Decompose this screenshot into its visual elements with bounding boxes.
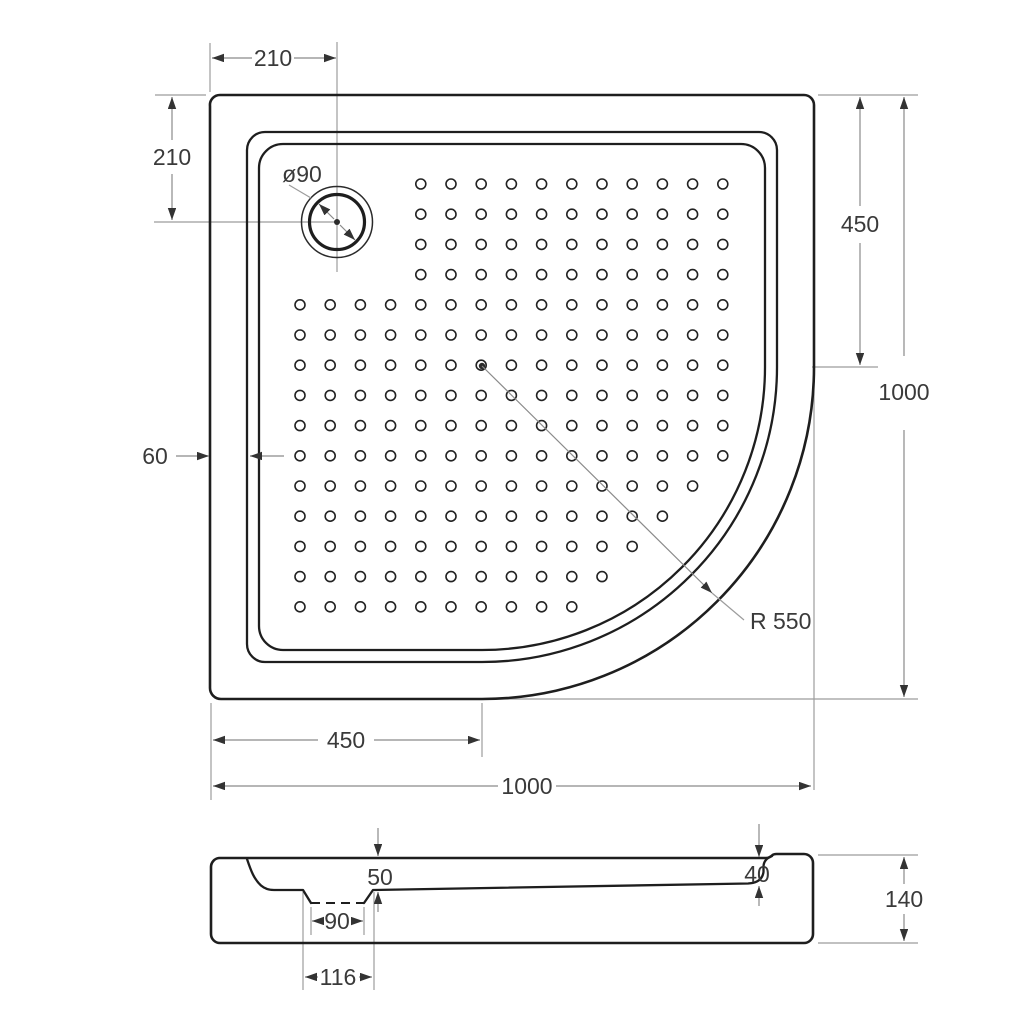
anti-slip-dot: [355, 541, 365, 551]
anti-slip-dot: [506, 421, 516, 431]
anti-slip-dot: [597, 511, 607, 521]
anti-slip-dot: [325, 421, 335, 431]
anti-slip-dot: [476, 390, 486, 400]
anti-slip-dot: [597, 209, 607, 219]
anti-slip-dot: [446, 360, 456, 370]
anti-slip-dot: [386, 330, 396, 340]
anti-slip-dot: [537, 451, 547, 461]
anti-slip-dot: [597, 270, 607, 280]
anti-slip-dot: [597, 360, 607, 370]
anti-slip-dot: [597, 572, 607, 582]
anti-slip-dot: [325, 541, 335, 551]
anti-slip-dot: [627, 239, 637, 249]
section-basin-floor: [364, 856, 772, 903]
technical-drawing-canvas: ø90 R 550 210 210 450: [0, 0, 1024, 1024]
anti-slip-dot: [597, 330, 607, 340]
dimension-section-height: 140: [885, 857, 923, 941]
anti-slip-dot: [537, 511, 547, 521]
anti-slip-dot: [386, 602, 396, 612]
anti-slip-dot: [688, 270, 698, 280]
anti-slip-dot: [537, 270, 547, 280]
drain: ø90: [282, 161, 372, 258]
anti-slip-dot: [657, 209, 667, 219]
anti-slip-dot: [537, 239, 547, 249]
anti-slip-dot: [537, 330, 547, 340]
anti-slip-dot: [657, 179, 667, 189]
anti-slip-dot: [567, 541, 577, 551]
anti-slip-dot: [506, 330, 516, 340]
anti-slip-dot: [537, 541, 547, 551]
anti-slip-dot: [688, 451, 698, 461]
anti-slip-dot: [567, 209, 577, 219]
anti-slip-dot: [537, 179, 547, 189]
anti-slip-dot: [567, 390, 577, 400]
anti-slip-dot: [688, 360, 698, 370]
top-view: ø90 R 550 210 210 450: [142, 42, 929, 800]
anti-slip-dot: [295, 572, 305, 582]
section-view: 50 90 116 40 140: [211, 824, 923, 990]
anti-slip-dot: [386, 572, 396, 582]
anti-slip-dot: [718, 390, 728, 400]
anti-slip-dot: [506, 572, 516, 582]
dim-label-bottom-straight: 450: [327, 727, 365, 753]
drain-diameter-arrow-lower: [340, 225, 355, 240]
anti-slip-dot: [567, 270, 577, 280]
dimension-rim-width: 60: [142, 443, 284, 469]
anti-slip-dot: [537, 572, 547, 582]
anti-slip-dot: [386, 390, 396, 400]
corner-radius-annotation: R 550: [479, 363, 812, 634]
anti-slip-dot: [537, 360, 547, 370]
anti-slip-dot: [657, 451, 667, 461]
section-outer-profile: [211, 854, 813, 943]
anti-slip-dot: [476, 481, 486, 491]
dimension-overall-width: 1000: [213, 773, 811, 799]
anti-slip-dot: [295, 481, 305, 491]
anti-slip-dot: [446, 572, 456, 582]
anti-slip-dot: [657, 270, 667, 280]
anti-slip-dot: [386, 451, 396, 461]
anti-slip-dot: [446, 481, 456, 491]
dim-label-side-straight: 450: [841, 211, 879, 237]
anti-slip-dot: [597, 179, 607, 189]
anti-slip-dot: [688, 481, 698, 491]
anti-slip-dot: [627, 541, 637, 551]
anti-slip-dot: [627, 360, 637, 370]
extension-lines: [154, 42, 918, 800]
anti-slip-dot: [627, 390, 637, 400]
anti-slip-dot: [718, 360, 728, 370]
anti-slip-dot: [718, 330, 728, 340]
anti-slip-dot: [295, 360, 305, 370]
anti-slip-dot: [627, 209, 637, 219]
anti-slip-dot: [657, 421, 667, 431]
anti-slip-dot: [688, 390, 698, 400]
drawing-page: ø90 R 550 210 210 450: [0, 0, 1024, 1024]
anti-slip-dot: [386, 360, 396, 370]
anti-slip-dot: [688, 421, 698, 431]
anti-slip-dot: [416, 300, 426, 310]
anti-slip-dot: [627, 421, 637, 431]
anti-slip-dot: [537, 481, 547, 491]
anti-slip-dot: [446, 541, 456, 551]
anti-slip-dot: [416, 179, 426, 189]
dim-label-front-rim: 40: [744, 861, 770, 887]
dimension-drain-offset-y: 210: [153, 97, 191, 220]
anti-slip-dot: [627, 270, 637, 280]
anti-slip-dot: [597, 451, 607, 461]
anti-slip-dot: [657, 360, 667, 370]
anti-slip-dot: [295, 541, 305, 551]
anti-slip-dot: [597, 541, 607, 551]
anti-slip-dot: [718, 421, 728, 431]
anti-slip-dot: [446, 511, 456, 521]
dim-label-overall-width: 1000: [501, 773, 552, 799]
anti-slip-dot: [355, 451, 365, 461]
dimension-side-straight: 450: [841, 97, 879, 365]
anti-slip-dot: [476, 179, 486, 189]
anti-slip-dot: [506, 481, 516, 491]
anti-slip-dot: [325, 451, 335, 461]
anti-slip-dot: [506, 451, 516, 461]
anti-slip-dot: [567, 511, 577, 521]
anti-slip-dot: [386, 511, 396, 521]
anti-slip-dot: [446, 300, 456, 310]
anti-slip-dot: [657, 481, 667, 491]
anti-slip-dot: [295, 451, 305, 461]
section-extension-lines: [303, 855, 918, 990]
anti-slip-dot: [416, 481, 426, 491]
dim-label-section-height: 140: [885, 886, 923, 912]
anti-slip-dot: [355, 511, 365, 521]
anti-slip-dot: [416, 572, 426, 582]
anti-slip-dot: [325, 300, 335, 310]
anti-slip-dot: [537, 300, 547, 310]
anti-slip-dot: [718, 209, 728, 219]
anti-slip-dot: [718, 239, 728, 249]
anti-slip-dot: [355, 390, 365, 400]
anti-slip-dot: [657, 390, 667, 400]
dimension-drain-hole: 90: [312, 908, 363, 934]
anti-slip-dot: [506, 179, 516, 189]
anti-slip-dot: [506, 209, 516, 219]
anti-slip-dot: [537, 390, 547, 400]
anti-slip-dot: [537, 602, 547, 612]
anti-slip-dot: [567, 300, 577, 310]
anti-slip-dot: [627, 330, 637, 340]
anti-slip-dot: [355, 421, 365, 431]
anti-slip-dot: [386, 421, 396, 431]
anti-slip-dot: [627, 481, 637, 491]
anti-slip-dot: [355, 330, 365, 340]
dim-label-drain-recess: 116: [320, 964, 357, 990]
anti-slip-dot: [476, 451, 486, 461]
anti-slip-dot: [627, 179, 637, 189]
anti-slip-dot: [597, 239, 607, 249]
anti-slip-dot: [295, 602, 305, 612]
dimension-drain-recess: 116: [305, 964, 372, 990]
anti-slip-dot: [688, 239, 698, 249]
anti-slip-dot: [567, 330, 577, 340]
dim-label-drain-hole: 90: [324, 908, 350, 934]
anti-slip-dot: [446, 602, 456, 612]
anti-slip-dot: [325, 330, 335, 340]
anti-slip-dot: [476, 541, 486, 551]
dimension-drain-offset-x: 210: [212, 45, 336, 71]
anti-slip-dot: [506, 602, 516, 612]
anti-slip-dot: [597, 390, 607, 400]
anti-slip-dot: [295, 421, 305, 431]
anti-slip-dot: [506, 511, 516, 521]
anti-slip-dot: [718, 270, 728, 280]
anti-slip-dot: [476, 511, 486, 521]
corner-radius-label: R 550: [750, 608, 811, 634]
anti-slip-dot: [506, 541, 516, 551]
radius-leader-elbow: [712, 593, 744, 620]
anti-slip-dot: [416, 270, 426, 280]
drain-diameter-label: ø90: [282, 161, 322, 187]
anti-slip-dot: [416, 360, 426, 370]
dimension-bottom-straight: 450: [213, 727, 480, 753]
anti-slip-dot: [355, 360, 365, 370]
anti-slip-dot: [325, 481, 335, 491]
dim-label-overall-height: 1000: [878, 379, 929, 405]
anti-slip-dot: [446, 270, 456, 280]
anti-slip-dot: [446, 421, 456, 431]
anti-slip-dot: [446, 179, 456, 189]
anti-slip-dot: [476, 572, 486, 582]
anti-slip-dot: [416, 541, 426, 551]
anti-slip-dot: [567, 239, 577, 249]
anti-slip-dot: [476, 421, 486, 431]
anti-slip-dot: [295, 511, 305, 521]
anti-slip-dot: [416, 511, 426, 521]
anti-slip-dot: [627, 511, 637, 521]
anti-slip-dot: [446, 330, 456, 340]
anti-slip-dot: [416, 602, 426, 612]
dim-label-drain-offset-x: 210: [254, 45, 292, 71]
anti-slip-dot: [688, 300, 698, 310]
anti-slip-dot: [446, 209, 456, 219]
anti-slip-dot: [476, 239, 486, 249]
anti-slip-dot: [386, 541, 396, 551]
anti-slip-dot: [386, 481, 396, 491]
anti-slip-dot: [567, 421, 577, 431]
anti-slip-dot: [688, 179, 698, 189]
anti-slip-dot: [416, 239, 426, 249]
anti-slip-dot: [567, 602, 577, 612]
radius-arrow: [482, 366, 712, 593]
anti-slip-dot: [416, 451, 426, 461]
anti-slip-dot: [446, 239, 456, 249]
anti-slip-dot: [506, 239, 516, 249]
anti-slip-dot: [325, 360, 335, 370]
drain-diameter-arrow-upper: [319, 204, 334, 219]
anti-slip-dot: [657, 239, 667, 249]
anti-slip-dot: [446, 390, 456, 400]
dim-label-rim-width: 60: [142, 443, 168, 469]
anti-slip-dot: [506, 270, 516, 280]
drain-center-point: [334, 219, 340, 225]
anti-slip-dot: [355, 602, 365, 612]
anti-slip-dot: [295, 330, 305, 340]
anti-slip-dot: [416, 421, 426, 431]
anti-slip-dot: [597, 300, 607, 310]
anti-slip-dot: [567, 451, 577, 461]
anti-slip-dot: [476, 330, 486, 340]
anti-slip-dot: [627, 300, 637, 310]
anti-slip-dot: [325, 390, 335, 400]
anti-slip-dot: [325, 511, 335, 521]
anti-slip-dot: [567, 179, 577, 189]
anti-slip-dot: [718, 179, 728, 189]
anti-slip-dot: [657, 300, 667, 310]
anti-slip-dot: [506, 360, 516, 370]
anti-slip-dot: [325, 602, 335, 612]
dim-label-basin-depth: 50: [367, 864, 393, 890]
anti-slip-dot: [446, 451, 456, 461]
anti-slip-dot: [567, 572, 577, 582]
anti-slip-dot: [718, 300, 728, 310]
anti-slip-dot: [657, 511, 667, 521]
dimension-front-rim: 40: [744, 824, 770, 906]
anti-slip-dot: [476, 270, 486, 280]
anti-slip-dot: [657, 330, 667, 340]
anti-slip-dot: [355, 572, 365, 582]
anti-slip-dot: [597, 481, 607, 491]
anti-slip-dot: [597, 421, 607, 431]
dim-label-drain-offset-y: 210: [153, 144, 191, 170]
anti-slip-dot: [386, 300, 396, 310]
anti-slip-dot: [567, 481, 577, 491]
anti-slip-dot: [688, 209, 698, 219]
anti-slip-dot: [325, 572, 335, 582]
anti-slip-dot: [506, 300, 516, 310]
section-basin-step-left: [247, 859, 311, 903]
dimension-overall-height: 1000: [878, 97, 929, 697]
anti-slip-dot: [416, 390, 426, 400]
anti-slip-dot: [476, 602, 486, 612]
anti-slip-dot: [537, 209, 547, 219]
anti-slip-dot: [355, 481, 365, 491]
anti-slip-dot: [295, 300, 305, 310]
anti-slip-dot: [627, 451, 637, 461]
anti-slip-dot: [567, 360, 577, 370]
anti-slip-dot: [355, 300, 365, 310]
anti-slip-dot: [476, 300, 486, 310]
anti-slip-dot: [718, 451, 728, 461]
anti-slip-dot: [688, 330, 698, 340]
anti-slip-dot: [295, 390, 305, 400]
anti-slip-dot: [416, 209, 426, 219]
anti-slip-dot: [416, 330, 426, 340]
dimension-basin-depth: 50: [367, 828, 393, 912]
anti-slip-dot: [476, 209, 486, 219]
